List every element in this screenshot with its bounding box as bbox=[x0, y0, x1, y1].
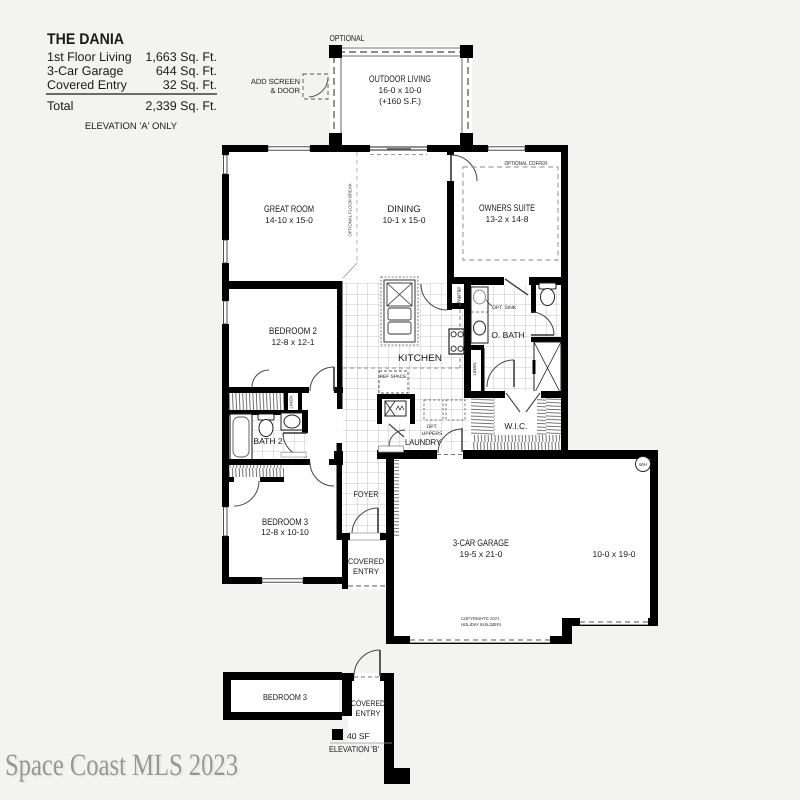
svg-text:& DOOR: & DOOR bbox=[270, 86, 300, 95]
svg-text:OPT. SINK: OPT. SINK bbox=[492, 305, 517, 311]
svg-text:14-10 x 15-0: 14-10 x 15-0 bbox=[265, 215, 313, 225]
svg-text:ADD SCREEN: ADD SCREEN bbox=[251, 77, 300, 86]
svg-text:ENTRY: ENTRY bbox=[356, 709, 382, 718]
svg-text:REF SPACE: REF SPACE bbox=[380, 374, 407, 380]
svg-text:UPPERS: UPPERS bbox=[422, 431, 443, 437]
svg-text:40 SF: 40 SF bbox=[347, 731, 370, 741]
svg-text:LINEN: LINEN bbox=[472, 363, 477, 376]
svg-text:LINEN: LINEN bbox=[289, 396, 294, 409]
svg-text:2,339 Sq. Ft.: 2,339 Sq. Ft. bbox=[145, 99, 217, 113]
svg-text:10-1 x 15-0: 10-1 x 15-0 bbox=[383, 215, 426, 225]
svg-text:ELEVATION 'B': ELEVATION 'B' bbox=[329, 744, 379, 754]
svg-text:1,663 Sq. Ft.: 1,663 Sq. Ft. bbox=[145, 50, 217, 64]
svg-text:FOYER: FOYER bbox=[354, 489, 379, 499]
svg-text:W.I.C.: W.I.C. bbox=[504, 421, 527, 431]
svg-text:Space Coast MLS 2023: Space Coast MLS 2023 bbox=[5, 747, 238, 782]
svg-text:Total: Total bbox=[47, 99, 73, 113]
svg-text:12-8 x 10-10: 12-8 x 10-10 bbox=[261, 527, 309, 537]
svg-text:BEDROOM 3: BEDROOM 3 bbox=[263, 692, 307, 702]
svg-text:32 Sq. Ft.: 32 Sq. Ft. bbox=[163, 78, 217, 92]
svg-text:12-8 x 12-1: 12-8 x 12-1 bbox=[272, 337, 315, 347]
svg-text:3-CAR GARAGE: 3-CAR GARAGE bbox=[453, 538, 509, 549]
svg-text:THE DANIA: THE DANIA bbox=[47, 31, 124, 48]
svg-text:13-2 x 14-8: 13-2 x 14-8 bbox=[486, 214, 529, 224]
svg-text:Covered Entry: Covered Entry bbox=[47, 78, 128, 92]
svg-text:COVERED: COVERED bbox=[348, 557, 384, 566]
svg-text:OPTIONAL: OPTIONAL bbox=[330, 33, 365, 43]
svg-text:BATH 2: BATH 2 bbox=[253, 436, 282, 446]
svg-text:3-Car Garage: 3-Car Garage bbox=[47, 64, 123, 78]
svg-text:OUTDOOR LIVING: OUTDOOR LIVING bbox=[369, 74, 431, 85]
svg-text:OPTIONAL FLOOR BREAK: OPTIONAL FLOOR BREAK bbox=[348, 183, 353, 236]
svg-text:COPYRIGHT© 2021: COPYRIGHT© 2021 bbox=[461, 616, 500, 621]
svg-text:10-0 x 19-0: 10-0 x 19-0 bbox=[593, 549, 636, 559]
svg-text:OWNERS SUITE: OWNERS SUITE bbox=[479, 203, 535, 214]
svg-text:W/H: W/H bbox=[639, 462, 647, 467]
svg-text:644 Sq. Ft.: 644 Sq. Ft. bbox=[156, 64, 217, 78]
svg-text:HOLIDAY BUILDERS: HOLIDAY BUILDERS bbox=[461, 622, 501, 627]
svg-text:DINING: DINING bbox=[387, 204, 420, 215]
svg-text:KITCHEN: KITCHEN bbox=[398, 353, 442, 364]
svg-text:OPTIONAL COFFER: OPTIONAL COFFER bbox=[505, 161, 548, 167]
svg-text:OPT.: OPT. bbox=[426, 424, 437, 430]
svg-text:LAUNDRY: LAUNDRY bbox=[405, 437, 441, 447]
svg-text:PANTRY: PANTRY bbox=[457, 287, 462, 304]
svg-text:COVERED: COVERED bbox=[351, 699, 385, 708]
svg-text:1st Floor Living: 1st Floor Living bbox=[47, 50, 132, 64]
svg-text:19-5 x 21-0: 19-5 x 21-0 bbox=[460, 549, 503, 559]
svg-text:BEDROOM 2: BEDROOM 2 bbox=[269, 326, 317, 337]
svg-text:(+160 S.F.): (+160 S.F.) bbox=[379, 96, 421, 106]
svg-text:O. BATH: O. BATH bbox=[491, 330, 524, 340]
svg-text:ENTRY: ENTRY bbox=[353, 567, 380, 576]
svg-text:GREAT ROOM: GREAT ROOM bbox=[264, 204, 314, 215]
svg-text:ELEVATION 'A' ONLY: ELEVATION 'A' ONLY bbox=[85, 121, 178, 132]
svg-text:16-0 x 10-0: 16-0 x 10-0 bbox=[379, 85, 422, 95]
